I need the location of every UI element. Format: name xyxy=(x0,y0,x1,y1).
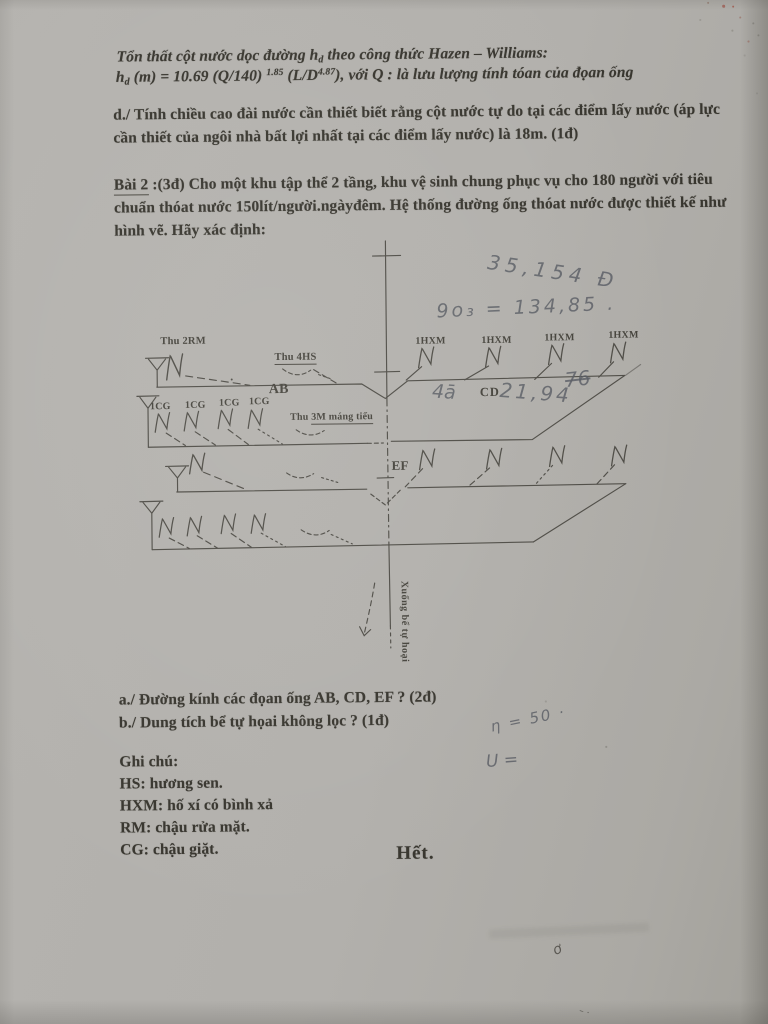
fixture-floor1-hxm-icon xyxy=(486,448,501,469)
speck xyxy=(605,746,607,748)
fixture-hxm-icon xyxy=(418,347,433,368)
handwriting-cd-struck: 76 xyxy=(564,365,592,392)
red-ink-speck xyxy=(722,5,725,8)
label-cg-3: 1CG xyxy=(219,397,240,408)
label-thu-3m-pre: Thu xyxy=(290,412,311,423)
red-ink-speck xyxy=(732,6,734,8)
speck xyxy=(744,55,746,57)
label-pipe-ab: AB xyxy=(269,382,289,398)
fixture-floor1-cg-icon xyxy=(221,514,236,534)
floor1-left-pipe xyxy=(177,489,367,492)
riser-top-crossbar xyxy=(373,255,401,256)
handwriting-cd-left: 4ā xyxy=(431,381,456,404)
drainage-riser-diagram xyxy=(0,0,768,1024)
label-thu-3m-main: 3M máng tiểu xyxy=(311,411,373,425)
note-hxm: HXM: hố xí có bình xả xyxy=(120,796,273,815)
riser-tick-floor2 xyxy=(375,371,400,372)
label-xuong-be-tu-hoai: Xuống bể tự hoại xyxy=(399,581,411,663)
septic-arrow xyxy=(359,583,375,636)
label-hxm-2: 1HXM xyxy=(481,335,511,346)
label-hxm-1: 1HXM xyxy=(415,335,445,346)
speck xyxy=(699,19,701,21)
fixture-floor1-cg-icon xyxy=(187,516,202,536)
speck xyxy=(739,17,741,19)
fixture-floor1-cg-icon xyxy=(251,514,266,534)
note-rm: RM: chậu rửa mặt. xyxy=(120,818,250,837)
label-cg-2: 1CG xyxy=(185,400,206,411)
handwriting-u: U = xyxy=(485,749,519,771)
trap-symbols xyxy=(283,368,339,535)
fixture-cg-icon xyxy=(155,413,170,433)
label-pipe-cd: CD xyxy=(480,385,500,400)
speck xyxy=(545,700,547,702)
label-thu-3m: Thu 3M máng tiểu xyxy=(290,411,373,423)
fixture-floor1-hxm-icon xyxy=(419,449,434,470)
fixture-floor1-hxm-icon xyxy=(549,446,564,467)
fixture-hxm-icon xyxy=(485,346,500,367)
note-cg: CG: chậu giặt. xyxy=(120,841,218,860)
label-thu-4hs: Thu 4HS xyxy=(274,352,316,365)
speck xyxy=(752,22,754,24)
funnel-floor1-cg xyxy=(140,501,163,550)
label-hxm-3: 1HXM xyxy=(544,332,574,343)
funnel-thu-2rm xyxy=(146,358,169,388)
het-end-marker: Hết. xyxy=(396,843,435,865)
fixture-floor1-hxm-icon xyxy=(611,445,626,466)
speck xyxy=(707,2,709,4)
floor2-cg-collector xyxy=(148,443,367,447)
question-a: a./ Đường kính các đọan ống AB, CD, EF ?… xyxy=(119,689,437,710)
question-b: b./ Dung tích bể tự họai không lọc ? (1đ… xyxy=(119,712,389,733)
fixture-cg-icon xyxy=(218,409,233,429)
fixture-hxm-icon xyxy=(610,342,625,363)
label-thu-2rm: Thu 2RM xyxy=(160,336,206,347)
speck xyxy=(731,30,733,32)
note-hs: HS: hương sen. xyxy=(120,775,223,794)
label-cg-4: 1CG xyxy=(249,396,270,407)
speck xyxy=(756,92,758,94)
speck xyxy=(747,40,749,42)
floor1-riser-vee xyxy=(371,490,401,505)
paper-sheet: Tổn thất cột nước dọc đường hd theo công… xyxy=(0,0,768,1024)
label-pipe-ef: EF xyxy=(391,458,408,474)
fixture-cg-icon xyxy=(184,411,199,431)
floor1-right-drop xyxy=(533,484,627,542)
scanned-exam-page: Tổn thất cột nước dọc đường hd theo công… xyxy=(0,0,768,1024)
pipe-ef xyxy=(408,484,626,488)
label-cg-1: 1CG xyxy=(150,401,171,412)
label-hxm-4: 1HXM xyxy=(608,330,638,341)
funnel-floor1-left xyxy=(166,466,189,492)
speck xyxy=(757,34,759,36)
fixture-cg-icon xyxy=(248,409,263,429)
fixture-floor1-cg-icon xyxy=(159,518,174,538)
fixture-hxm-icon xyxy=(548,344,563,365)
notes-title: Ghi chú: xyxy=(119,753,178,772)
fixture-floor1-rm-icon xyxy=(189,453,204,474)
